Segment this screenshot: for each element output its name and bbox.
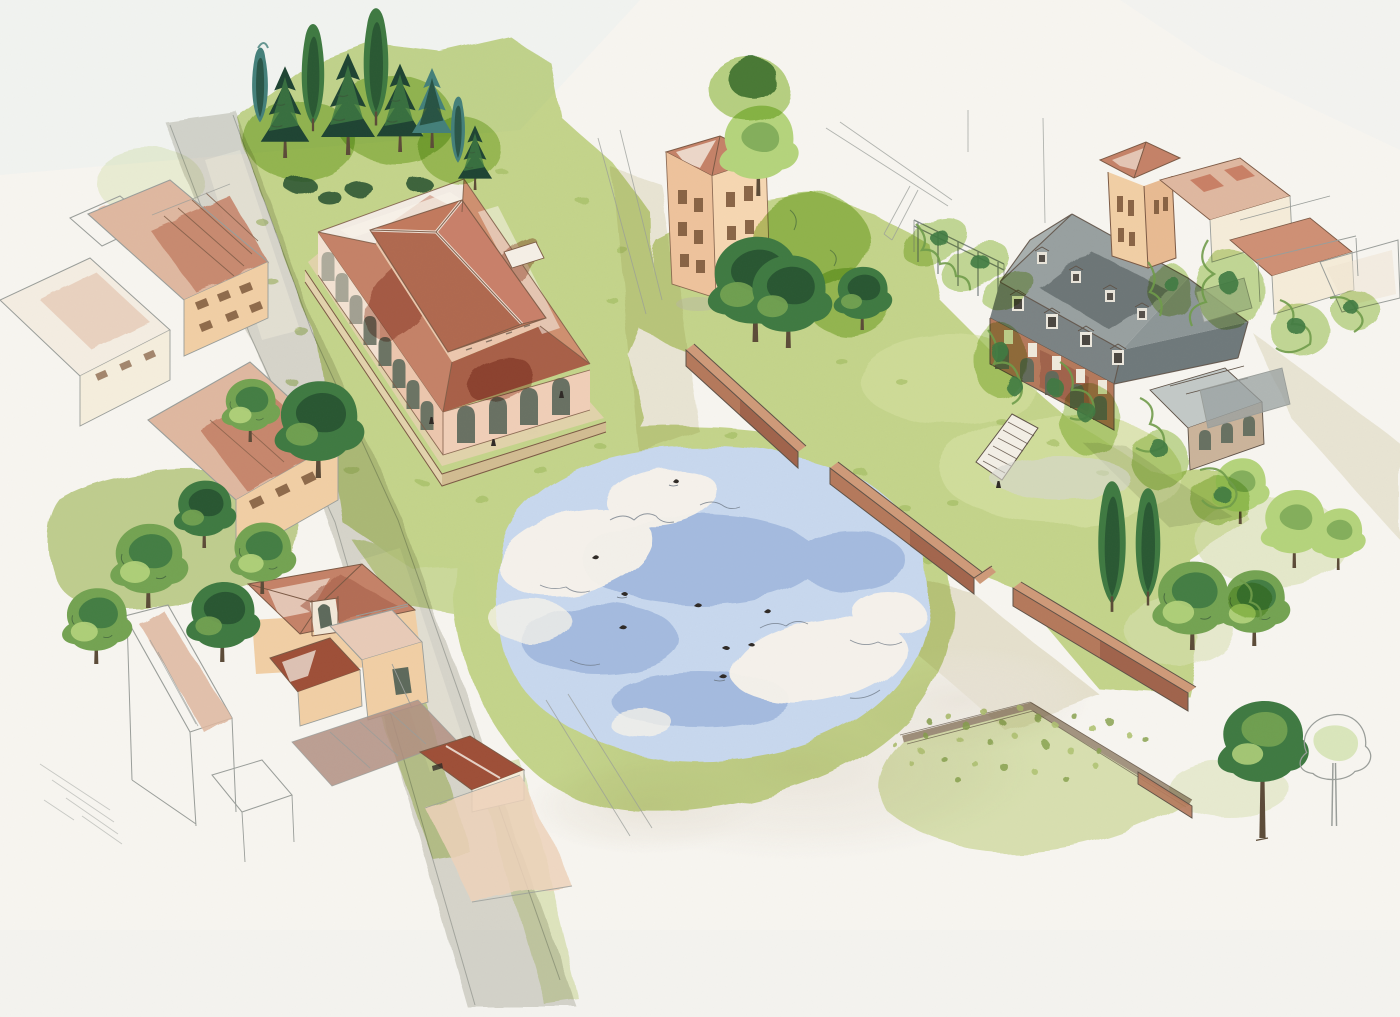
watercolor-aerial-illustration: watercolor-and-ink illustration — [0, 0, 1400, 1017]
painting-figure: watercolor-and-ink illustration — [0, 0, 1400, 1017]
church-tower — [1100, 142, 1180, 268]
scene-canvas: watercolor-and-ink illustration — [0, 0, 1400, 1017]
